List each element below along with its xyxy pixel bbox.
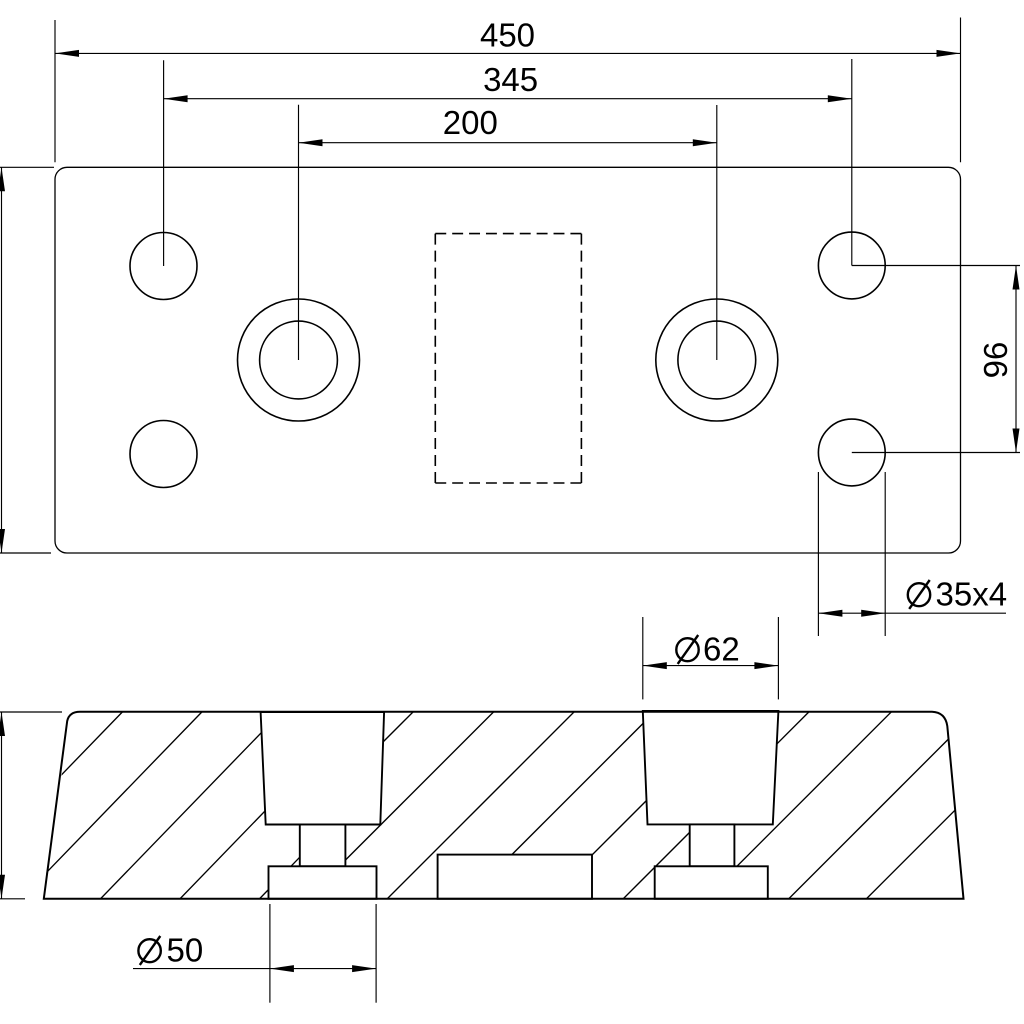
svg-text:35x4: 35x4 — [936, 576, 1008, 613]
svg-text:96: 96 — [977, 342, 1014, 379]
svg-text:345: 345 — [483, 61, 538, 98]
svg-text:50: 50 — [167, 932, 204, 969]
svg-text:62: 62 — [703, 631, 740, 668]
svg-text:450: 450 — [480, 17, 535, 54]
svg-text:200: 200 — [443, 104, 498, 141]
